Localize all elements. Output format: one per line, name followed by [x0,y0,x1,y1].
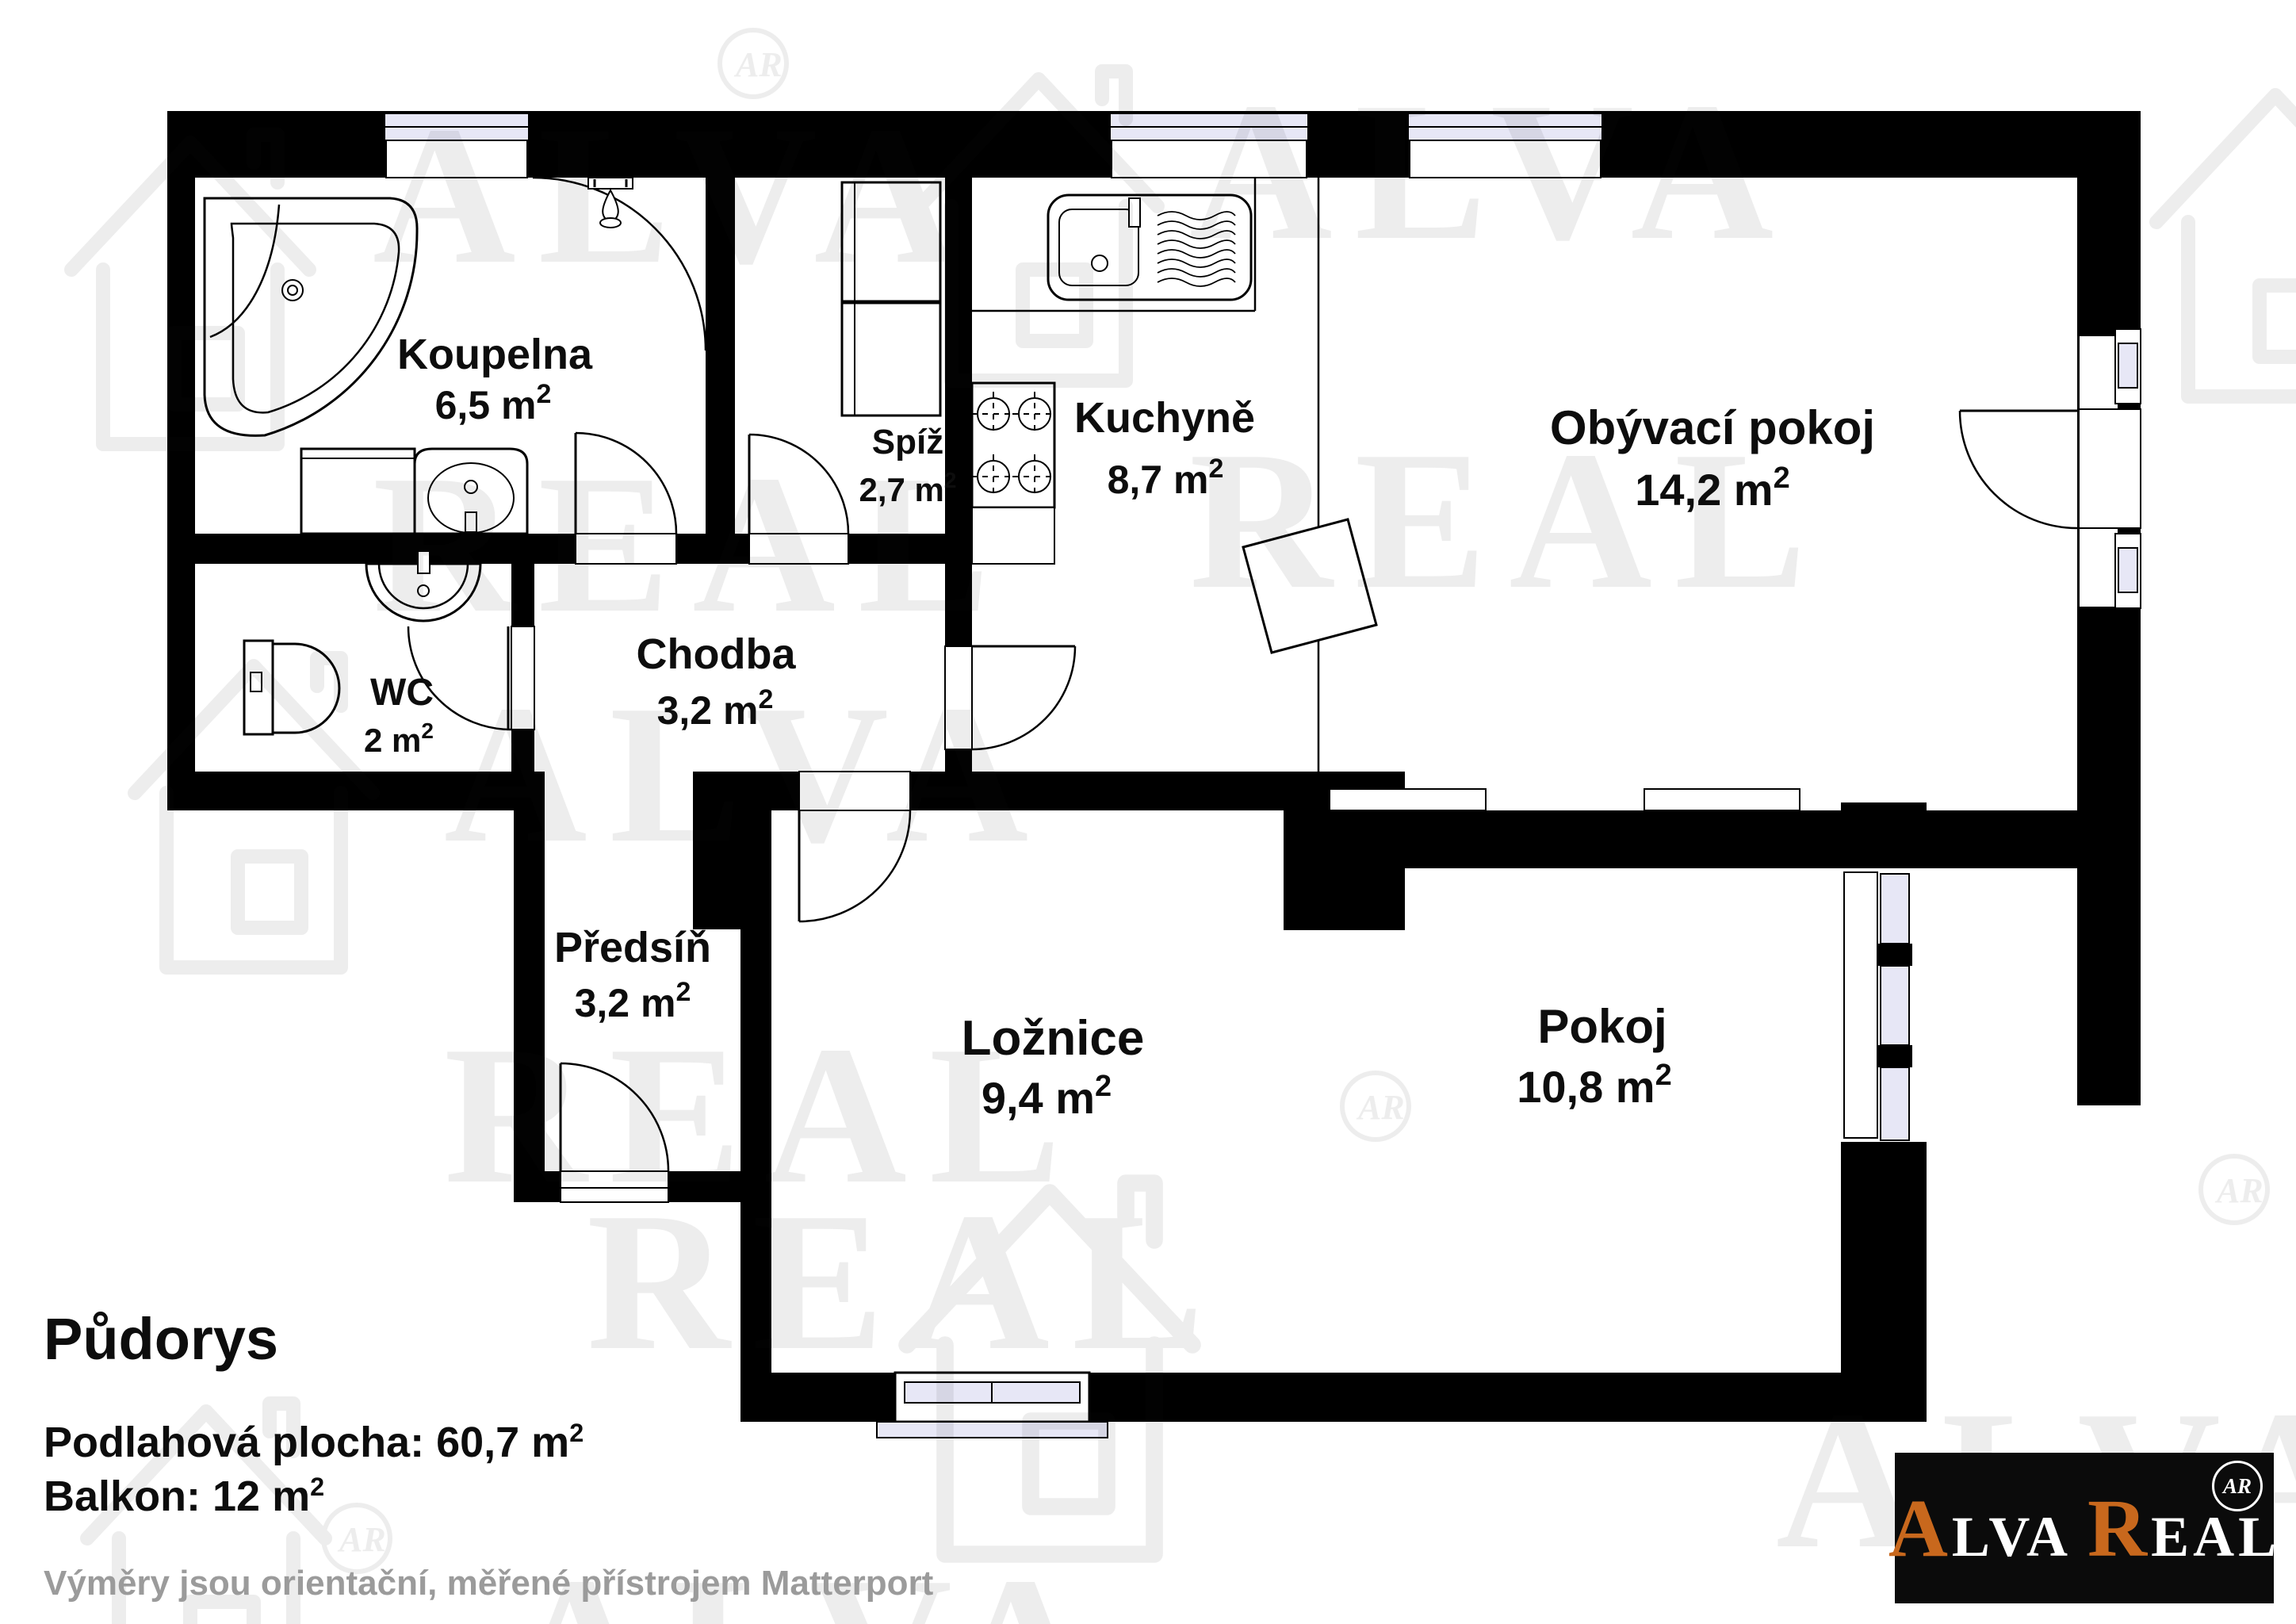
logo-letter-r: R [2087,1483,2151,1574]
wall-left [167,111,195,810]
floor-area-label: Podlahová plocha: 60,7 m [44,1419,569,1466]
room-label-koupelna: Koupelna [397,331,593,378]
room-label-wc: WC [370,672,434,714]
watermark-text: ALVA [1189,62,1796,282]
logo-letter-a: A [1888,1483,1952,1574]
room-label-pokoj: Pokoj [1537,1000,1667,1053]
radiator-living-2 [1644,789,1800,810]
watermark-registered-badge: AR [1342,1073,1409,1139]
room-area-koupelna: 6,5 m2 [435,379,552,427]
watermark-registered-badge: AR [2201,1156,2267,1223]
svg-text:AR: AR [733,45,783,84]
svg-text:AR: AR [2214,1171,2263,1210]
disclaimer-text: Výměry jsou orientační, měřené přístroje… [44,1564,933,1603]
logo-monogram-badge: AR [2212,1461,2263,1511]
watermark-text: REAL [1189,411,1829,630]
balcony-text: Balkon: 12 m2 [44,1472,324,1521]
alva-real-logo: ALVAREAL AR [1895,1453,2274,1603]
page-title: Půdorys [44,1305,278,1373]
floor-area-text: Podlahová plocha: 60,7 m2 [44,1418,584,1467]
watermark-text: ALVA [444,665,1050,884]
logo-rest-2: EAL [2151,1505,2280,1568]
balcony-door-living [1960,329,2141,608]
logo-rest-1: LVA [1952,1505,2072,1568]
room-area-wc: 2 m2 [364,718,434,759]
room-area-pokoj: 10,8 m2 [1517,1059,1671,1112]
balcony-sup: 2 [310,1473,324,1501]
floor-area-sup: 2 [569,1419,584,1447]
room-label-predsin: Předsíň [554,924,711,971]
floor-plan-drawing: Koupelna 6,5 m2 Spíž 2,7 m2 Kuchyně 8,7 … [0,0,2296,1624]
svg-text:AR: AR [337,1520,386,1559]
svg-text:AR: AR [1356,1088,1405,1127]
watermark-text: ALVA [373,86,979,305]
balcony-label: Balkon: 12 m [44,1473,310,1520]
wall-living-bottom [1405,810,2077,868]
watermark-text: REAL [587,1172,1226,1392]
watermark-text: REAL [373,435,1012,654]
wall-balcony-right [2077,810,2141,1105]
floor-plan-page: Koupelna 6,5 m2 Spíž 2,7 m2 Kuchyně 8,7 … [0,0,2296,1624]
watermark-registered-badge: AR [323,1505,390,1572]
window-pokoj-right [1841,868,1927,1142]
watermark-house-icon [2156,87,2296,396]
radiator-living-1 [1330,789,1486,810]
